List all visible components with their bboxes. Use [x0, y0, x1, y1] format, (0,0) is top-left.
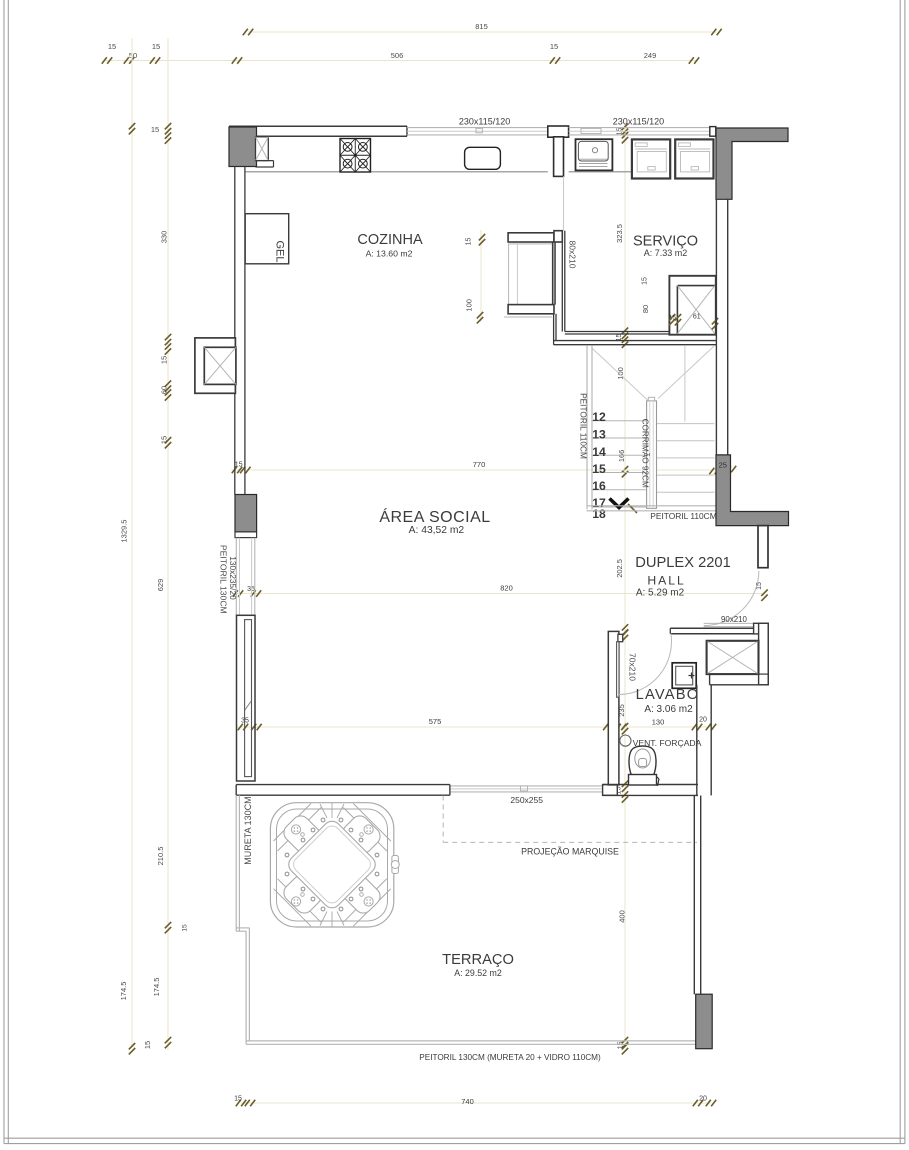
svg-text:506: 506: [391, 51, 404, 60]
svg-text:PEITORIL 130CM (MURETA 20 + VI: PEITORIL 130CM (MURETA 20 + VIDRO 110CM): [419, 1053, 601, 1062]
svg-text:210.5: 210.5: [156, 847, 165, 866]
svg-text:15: 15: [181, 924, 188, 932]
svg-text:18: 18: [592, 507, 606, 521]
svg-text:GEL: GEL: [273, 240, 285, 262]
svg-text:60: 60: [160, 386, 169, 394]
svg-text:15: 15: [108, 42, 116, 51]
svg-text:20: 20: [699, 717, 707, 724]
svg-text:14: 14: [592, 445, 606, 459]
svg-text:25: 25: [719, 460, 727, 469]
svg-text:LAVABO: LAVABO: [636, 687, 700, 703]
svg-text:50: 50: [129, 51, 137, 60]
svg-text:400: 400: [618, 910, 627, 923]
svg-text:174.5: 174.5: [152, 978, 161, 997]
svg-text:61: 61: [693, 314, 701, 321]
svg-text:100: 100: [464, 299, 473, 312]
svg-text:575: 575: [429, 717, 442, 726]
svg-text:12: 12: [592, 410, 606, 424]
svg-text:PEITORIL 110CM: PEITORIL 110CM: [579, 393, 589, 459]
svg-text:A: 13.60 m2: A: 13.60 m2: [366, 249, 413, 259]
svg-text:202.5: 202.5: [615, 559, 624, 578]
svg-text:815: 815: [475, 22, 488, 31]
svg-text:15: 15: [550, 42, 558, 51]
svg-text:15: 15: [617, 1041, 624, 1049]
svg-text:COZINHA: COZINHA: [357, 232, 423, 248]
svg-text:15: 15: [160, 436, 169, 444]
svg-text:230x115/120: 230x115/120: [459, 116, 510, 126]
svg-text:TERRAÇO: TERRAÇO: [442, 952, 514, 968]
svg-text:16: 16: [592, 479, 606, 493]
svg-text:90x210: 90x210: [721, 615, 747, 624]
svg-text:15: 15: [235, 462, 243, 469]
svg-text:A: 29.52 m2: A: 29.52 m2: [454, 968, 502, 978]
svg-text:323.5: 323.5: [615, 224, 624, 243]
svg-text:80x210: 80x210: [567, 241, 577, 269]
svg-text:629: 629: [156, 579, 165, 592]
svg-text:1329.5: 1329.5: [120, 520, 129, 543]
svg-text:A: 3.06 m2: A: 3.06 m2: [644, 704, 693, 715]
svg-text:ÁREA SOCIAL: ÁREA SOCIAL: [379, 507, 490, 526]
svg-text:13: 13: [592, 428, 606, 442]
svg-text:A: 5.29 m2: A: 5.29 m2: [636, 588, 685, 599]
svg-text:A: 7.33 m2: A: 7.33 m2: [644, 248, 688, 258]
svg-text:330: 330: [160, 231, 169, 244]
svg-text:DUPLEX 2201: DUPLEX 2201: [635, 555, 731, 571]
svg-text:15: 15: [642, 277, 649, 285]
svg-text:740: 740: [461, 1097, 474, 1106]
svg-text:250x255: 250x255: [510, 795, 543, 805]
svg-text:15: 15: [160, 356, 169, 364]
svg-text:PEITORIL 110CM: PEITORIL 110CM: [650, 511, 716, 521]
svg-text:130: 130: [652, 718, 665, 727]
svg-text:15: 15: [143, 1041, 152, 1049]
svg-text:230x115/120: 230x115/120: [613, 116, 664, 126]
svg-text:249: 249: [644, 51, 657, 60]
svg-text:770: 770: [473, 460, 486, 469]
svg-text:15: 15: [669, 315, 677, 322]
svg-text:35: 35: [247, 586, 255, 593]
svg-text:HALL: HALL: [647, 574, 686, 588]
svg-text:15: 15: [152, 42, 160, 51]
svg-text:174.5: 174.5: [119, 982, 128, 1001]
svg-text:80: 80: [641, 305, 650, 313]
svg-text:15: 15: [151, 125, 159, 134]
svg-text:820: 820: [500, 584, 513, 593]
svg-text:15: 15: [234, 1096, 242, 1103]
svg-text:A: 43,52 m2: A: 43,52 m2: [409, 525, 465, 536]
svg-text:PROJEÇÃO MARQUISE: PROJEÇÃO MARQUISE: [521, 847, 619, 857]
svg-text:20: 20: [699, 1096, 707, 1103]
svg-text:166: 166: [617, 450, 626, 463]
svg-text:MURETA 130CM: MURETA 130CM: [243, 796, 253, 864]
svg-text:70x210: 70x210: [627, 653, 637, 681]
svg-text:PEITORIL 130CM: PEITORIL 130CM: [219, 545, 229, 614]
svg-text:15: 15: [466, 238, 473, 246]
svg-text:15: 15: [592, 462, 606, 476]
svg-text:CORRIMÃO 92CM: CORRIMÃO 92CM: [641, 419, 651, 488]
